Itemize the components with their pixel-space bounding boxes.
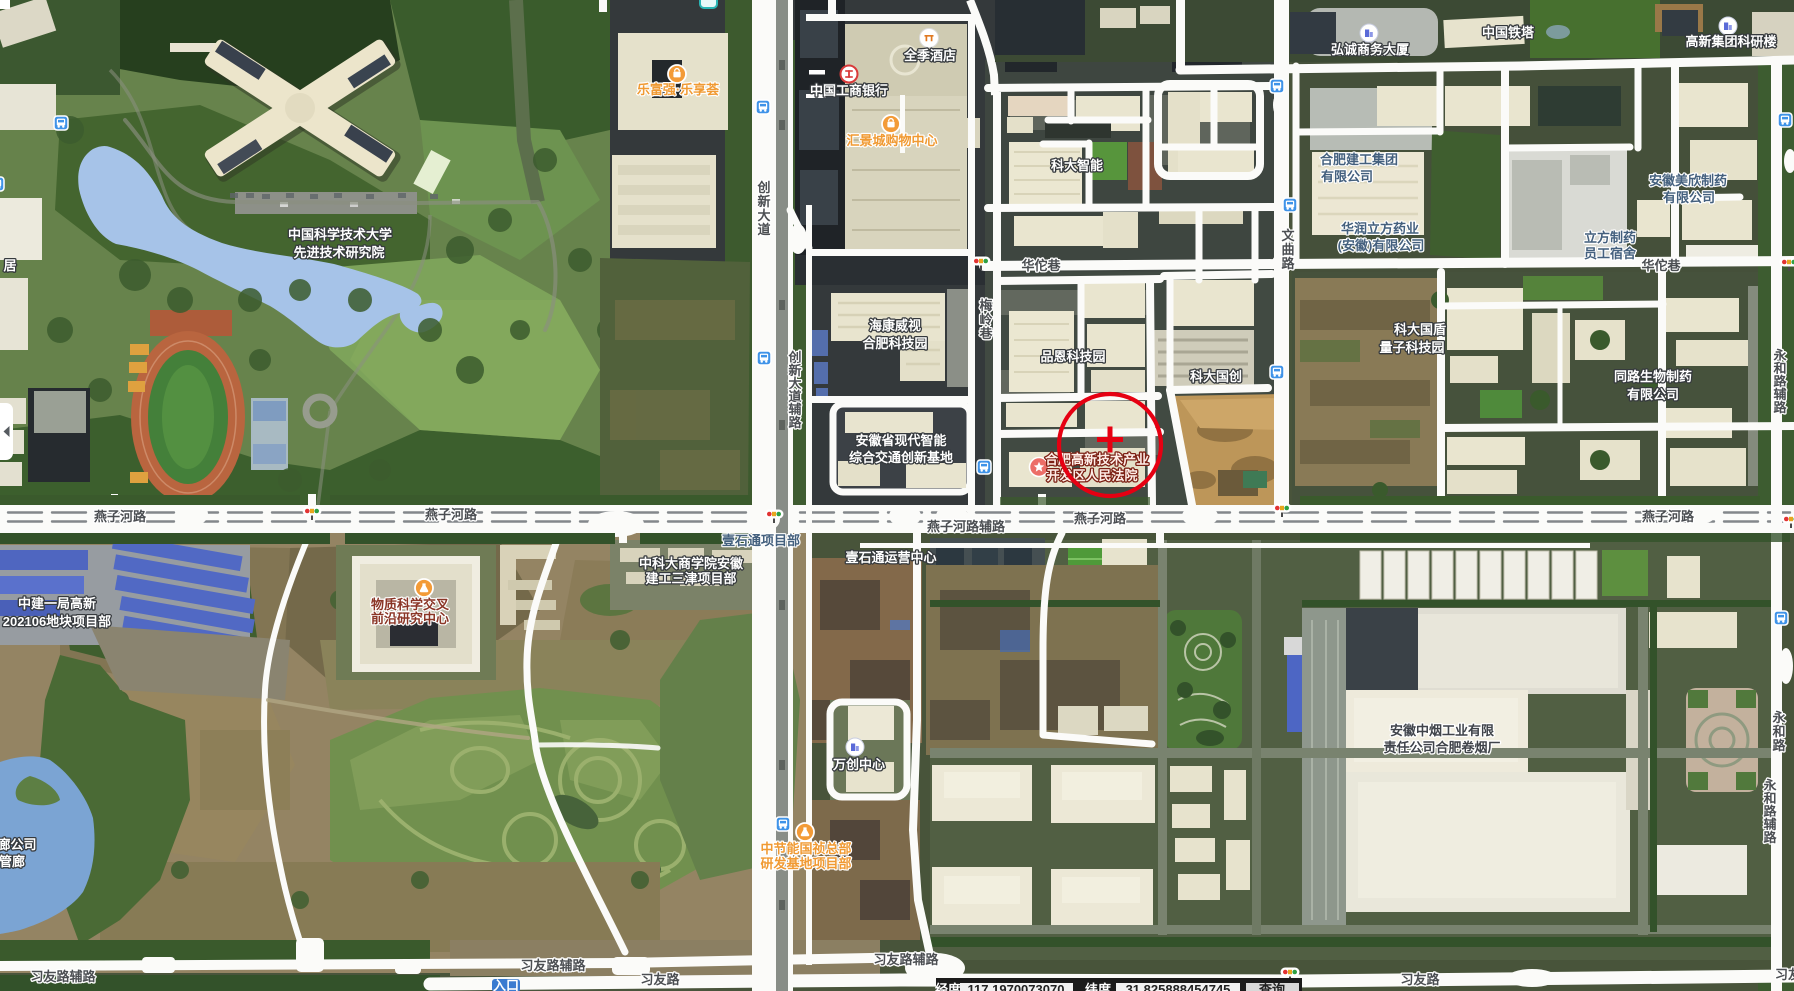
svg-text:海康威视: 海康威视 [869,318,921,333]
svg-text:燕子河路: 燕子河路 [94,509,147,524]
svg-text:中建一局高新: 中建一局高新 [18,596,96,611]
svg-text:华佗巷: 华佗巷 [1021,258,1061,273]
svg-text:入口: 入口 [493,978,519,991]
svg-text:31.825888454745: 31.825888454745 [1126,982,1231,991]
svg-text:管廊: 管廊 [0,854,25,869]
svg-text:科大国创: 科大国创 [1190,369,1242,384]
svg-text:安徽中烟工业有限: 安徽中烟工业有限 [1390,723,1495,738]
svg-text:万创中心: 万创中心 [832,757,885,772]
svg-text:高新集团科研楼: 高新集团科研楼 [1685,34,1776,49]
svg-text:117.1970073070: 117.1970073070 [968,982,1065,991]
svg-text:梅岭巷: 梅岭巷 [978,298,993,341]
svg-text:燕子河路辅路: 燕子河路辅路 [927,519,1006,534]
svg-text:弘诚商务大厦: 弘诚商务大厦 [1331,42,1410,57]
svg-text:合肥建工集团: 合肥建工集团 [1320,152,1398,167]
svg-text:经度: 经度 [935,982,962,991]
svg-text:有限公司: 有限公司 [1627,387,1679,402]
svg-text:研发基地项目部: 研发基地项目部 [760,856,851,871]
svg-text:有限公司: 有限公司 [1663,190,1715,205]
svg-text:壹石通项目部: 壹石通项目部 [722,533,800,548]
svg-text:有限公司: 有限公司 [1321,169,1373,184]
svg-text:华佗巷: 华佗巷 [1641,258,1681,273]
svg-text:综合交通创新基地: 综合交通创新基地 [849,450,953,465]
svg-text:建工三津项目部: 建工三津项目部 [645,571,736,586]
svg-text:中国铁塔: 中国铁塔 [1482,25,1535,40]
svg-text:永和路辅路: 永和路辅路 [1762,778,1777,845]
svg-text:同路生物制药: 同路生物制药 [1614,369,1692,384]
svg-text:科大国盾: 科大国盾 [1394,322,1446,337]
svg-text:居: 居 [3,258,16,273]
svg-text:永和路辅路: 永和路辅路 [1772,348,1787,415]
svg-text:汇景城购物中心: 汇景城购物中心 [846,133,937,148]
svg-text:燕子河路: 燕子河路 [425,507,478,522]
svg-text:文曲路: 文曲路 [1281,228,1295,271]
svg-text:量子科技园: 量子科技园 [1379,340,1444,355]
svg-text:(安徽)有限公司: (安徽)有限公司 [1338,238,1425,253]
svg-text:先进技术研究院: 先进技术研究院 [293,245,384,260]
svg-text:习友路: 习友路 [1400,972,1440,987]
svg-text:习友路辅路: 习友路辅路 [873,952,939,967]
svg-text:物质科学交叉: 物质科学交叉 [371,597,450,612]
svg-text:华润立方药业: 华润立方药业 [1341,221,1419,236]
svg-text:习友: 习友 [1775,967,1794,982]
svg-text:开发区人民法院: 开发区人民法院 [1046,468,1137,483]
svg-text:中国工商银行: 中国工商银行 [810,83,888,98]
svg-text:科大智能: 科大智能 [1051,158,1103,173]
svg-text:安徽美欣制药: 安徽美欣制药 [1649,173,1727,188]
svg-text:责任公司合肥卷烟厂: 责任公司合肥卷烟厂 [1383,740,1500,755]
svg-text:壹石通运营中心: 壹石通运营中心 [845,550,936,565]
svg-text:习友路: 习友路 [640,972,680,987]
svg-text:安徽省现代智能: 安徽省现代智能 [855,433,946,448]
svg-text:燕子河路: 燕子河路 [1642,509,1695,524]
svg-text:员工宿舍: 员工宿舍 [1584,246,1637,261]
svg-text:乐富强·乐享荟: 乐富强·乐享荟 [637,82,720,97]
svg-text:创新大道: 创新大道 [756,180,770,237]
svg-text:廊公司: 廊公司 [0,837,37,852]
svg-text:燕子河路: 燕子河路 [1074,511,1127,526]
svg-text:前沿研究中心: 前沿研究中心 [371,611,449,626]
svg-text:202106地块项目部: 202106地块项目部 [3,614,111,629]
svg-text:中科大商学院安徽: 中科大商学院安徽 [639,556,744,571]
svg-text:纬度: 纬度 [1085,982,1112,991]
svg-text:习友路辅路: 习友路辅路 [520,958,586,973]
svg-text:合肥科技园: 合肥科技园 [862,336,927,351]
svg-text:中节能国祯总部: 中节能国祯总部 [760,841,851,856]
svg-text:习友路辅路: 习友路辅路 [30,969,96,984]
svg-text:永和路: 永和路 [1771,710,1786,753]
svg-text:中国科学技术大学: 中国科学技术大学 [288,227,392,242]
svg-text:立方制药: 立方制药 [1584,230,1636,245]
svg-text:品恩科技园: 品恩科技园 [1040,349,1105,364]
svg-text:查询: 查询 [1258,982,1285,991]
svg-text:全季酒店: 全季酒店 [903,48,956,63]
svg-text:创新大道辅路: 创新大道辅路 [787,350,802,430]
